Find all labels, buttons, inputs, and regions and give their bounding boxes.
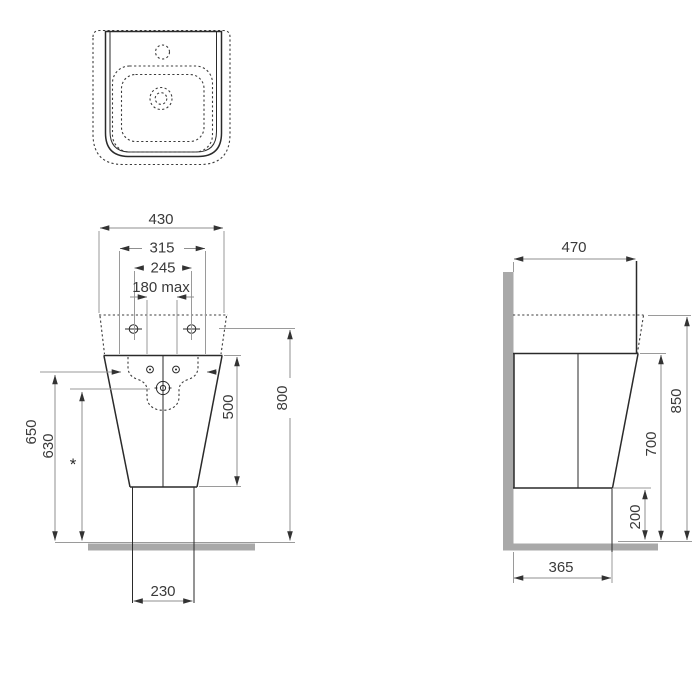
front-view: 430 315 245 180 max 650 630 * 500 800 23… <box>23 211 295 603</box>
drain-outer <box>150 88 172 110</box>
technical-drawing: 430 315 245 180 max 650 630 * 500 800 23… <box>0 0 700 700</box>
front-body-right-slant <box>197 356 222 487</box>
wall-fixing-holes <box>125 325 200 334</box>
dim-label-245: 245 <box>150 260 175 277</box>
dim-label-470: 470 <box>561 239 586 256</box>
front-body-left-slant <box>104 356 130 487</box>
front-floor-bar <box>88 544 255 551</box>
top-view-rim-outer <box>106 32 222 157</box>
dim-label-430: 430 <box>148 211 173 228</box>
tap-hole <box>156 45 170 59</box>
front-hidden-slant-right <box>221 316 227 354</box>
dim-label-700: 700 <box>643 431 660 456</box>
dim-label-315: 315 <box>149 240 174 257</box>
dim-label-850: 850 <box>668 388 685 413</box>
side-floor-bar <box>503 544 658 551</box>
top-view-rim-inner <box>110 32 217 153</box>
bowl-outline-inner <box>122 75 205 142</box>
side-front-slant <box>613 354 639 488</box>
dim-label-180max: 180 max <box>132 279 190 296</box>
side-view: 470 850 700 200 365 <box>503 239 692 583</box>
dim-label-200: 200 <box>627 504 644 529</box>
note-asterisk: * <box>70 455 77 474</box>
dim-label-630: 630 <box>40 433 57 458</box>
side-hidden-slant <box>638 316 644 353</box>
drawing-canvas: 430 315 245 180 max 650 630 * 500 800 23… <box>0 0 700 700</box>
top-view <box>93 31 230 165</box>
dim-label-800: 800 <box>274 385 291 410</box>
dim-label-650: 650 <box>23 419 40 444</box>
drain-inner <box>155 93 167 105</box>
dim-label-365: 365 <box>548 559 573 576</box>
front-hidden-slant-left <box>100 316 105 354</box>
dim-label-500: 500 <box>220 394 237 419</box>
dim-label-230: 230 <box>150 583 175 600</box>
side-wall-bar <box>503 272 514 550</box>
